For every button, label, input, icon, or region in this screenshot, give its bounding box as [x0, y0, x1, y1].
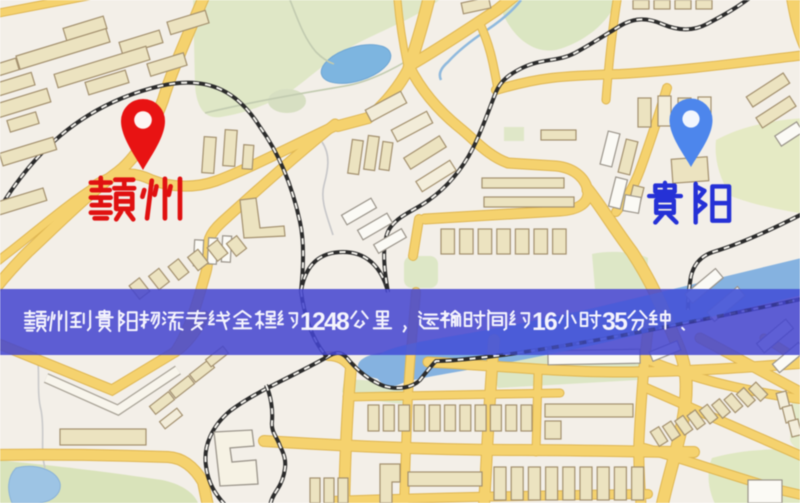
svg-text:5: 5 [614, 309, 628, 336]
svg-text:6: 6 [544, 309, 558, 336]
svg-text:8: 8 [336, 309, 350, 336]
